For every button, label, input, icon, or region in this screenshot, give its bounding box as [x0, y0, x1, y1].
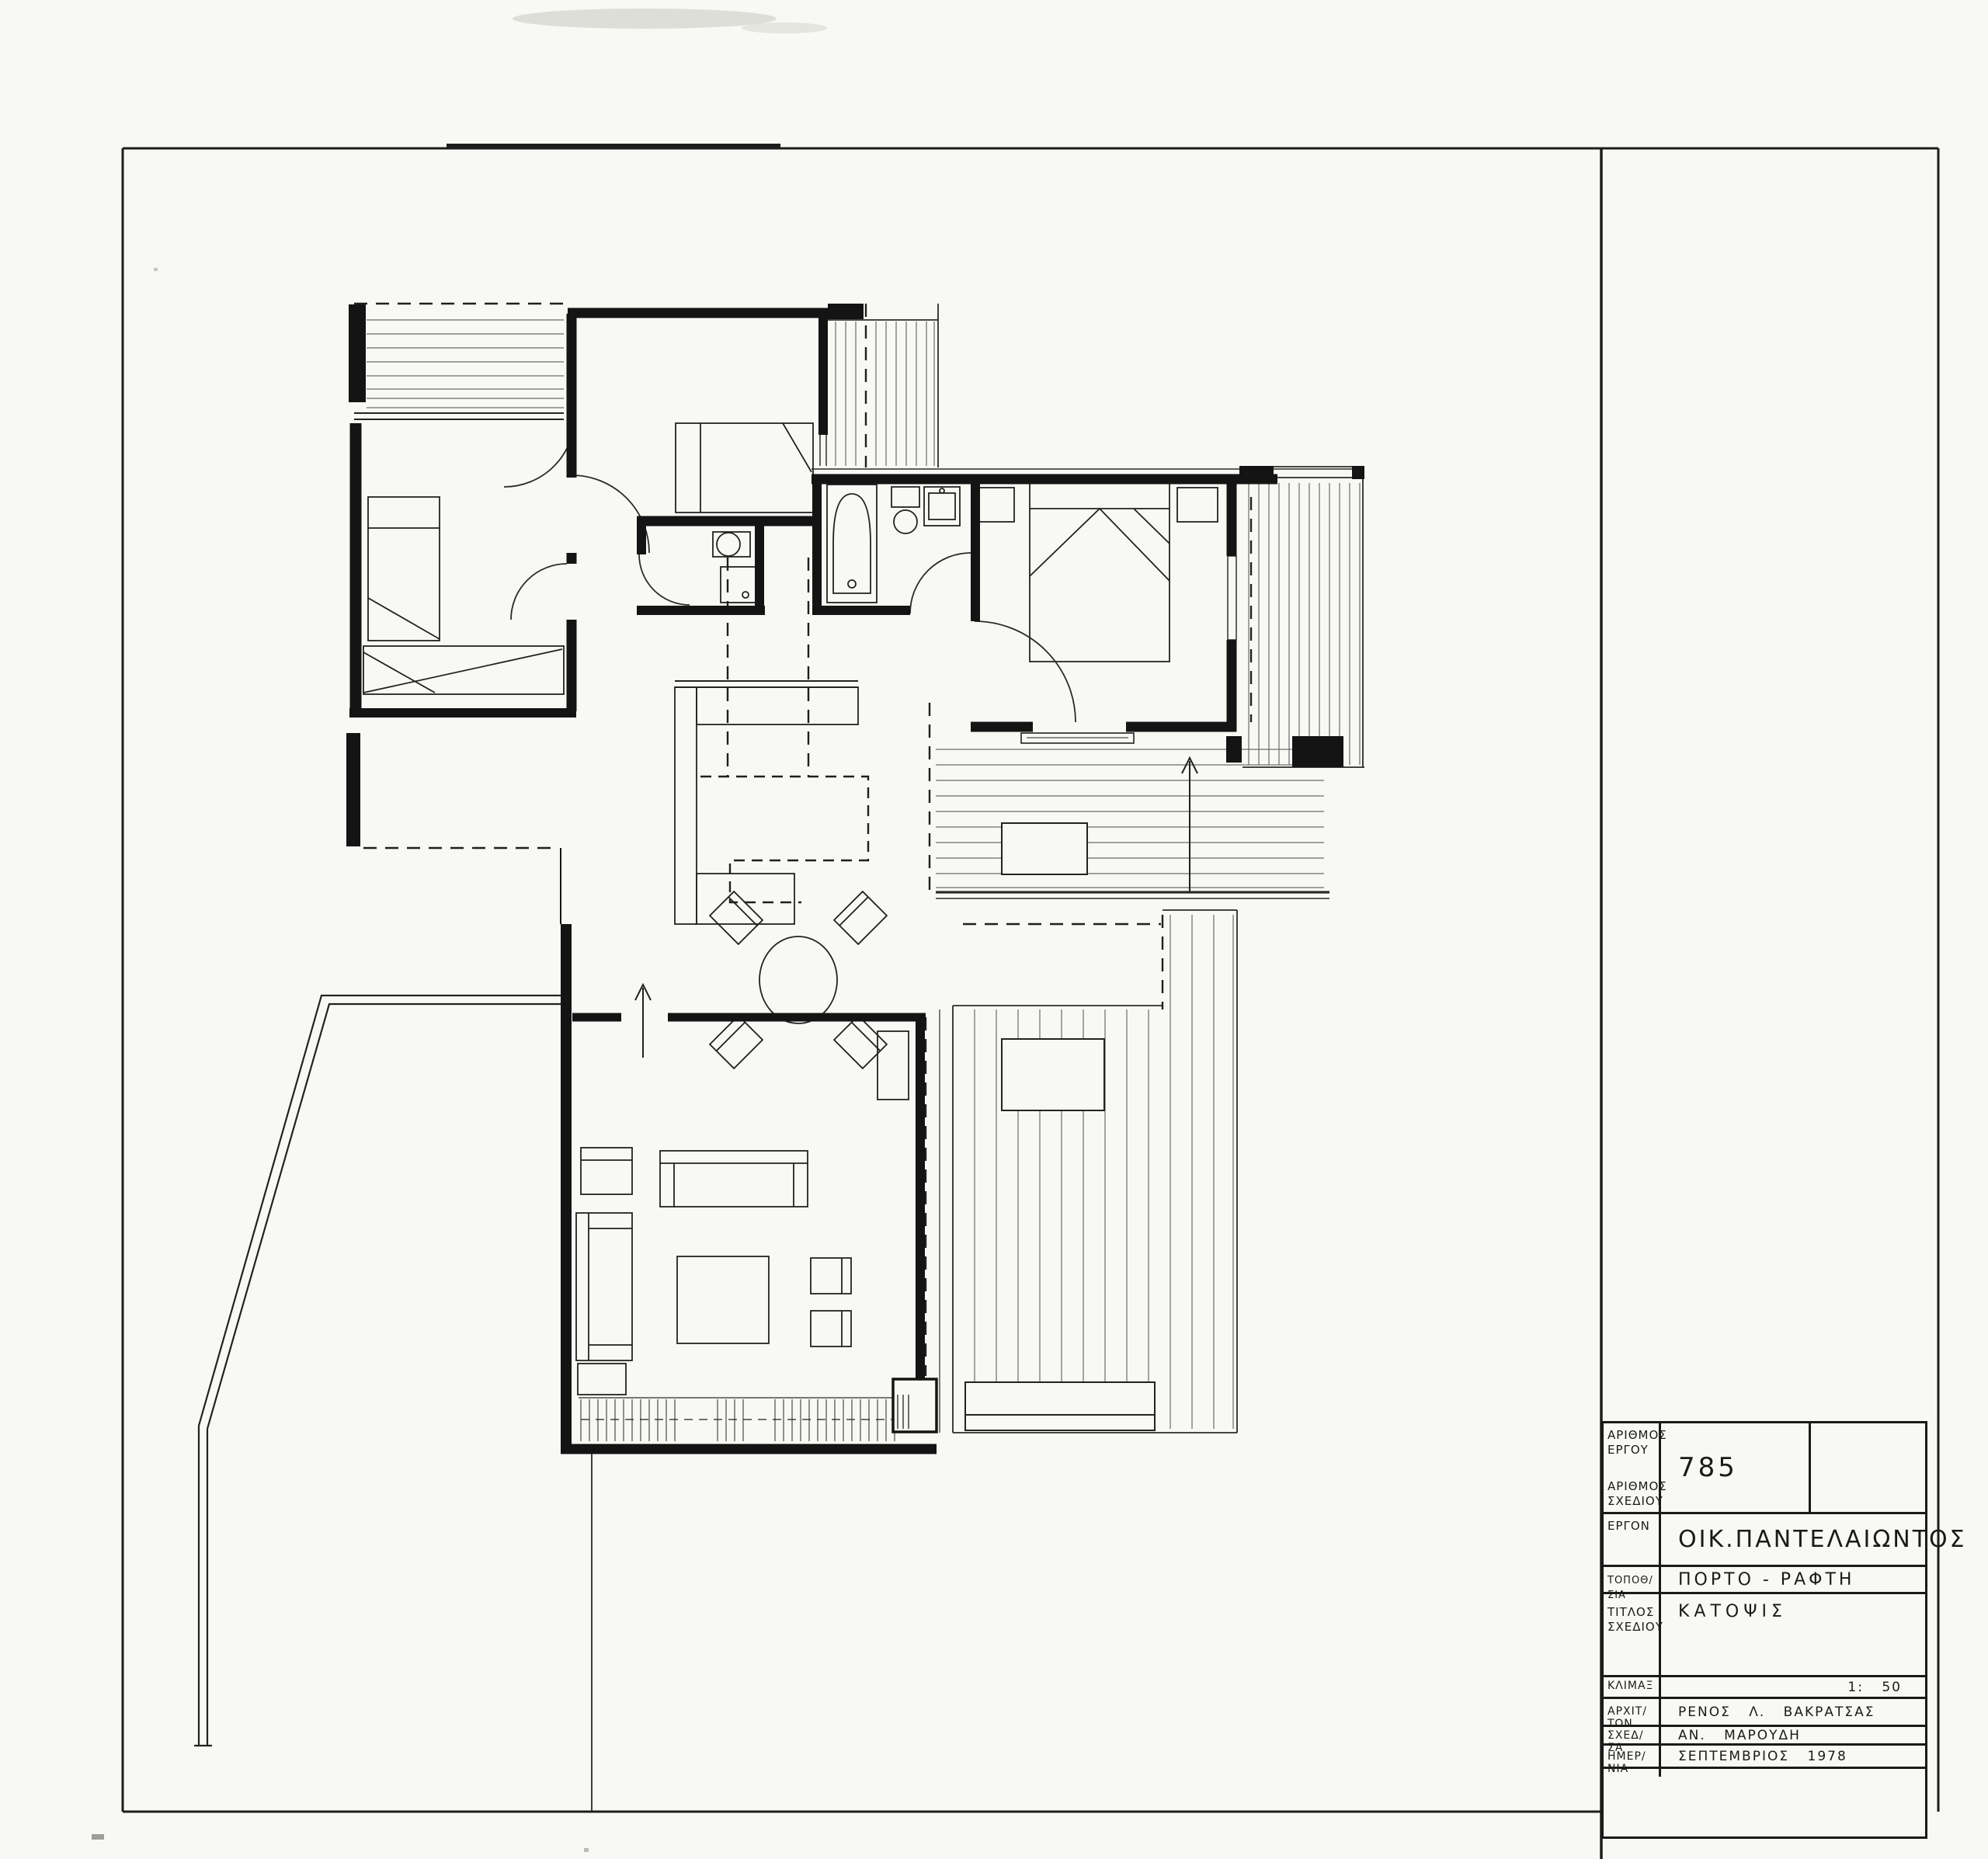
shower-tray	[721, 567, 756, 603]
title-block-row-architect: ΑΡΧΙΤ/ΤΩΝ ΡΕΝΟΣ Λ. ΒΑΚΡΑΤΣΑΣ	[1604, 1699, 1925, 1727]
bedroom-1	[354, 413, 564, 694]
toilet-1	[713, 532, 750, 557]
wall-pillar-w	[346, 733, 360, 846]
title-block-row-number: ΑΡΙΘΜΟΣ ΕΡΓΟΥ ΑΡΙΘΜΟΣ ΣΧΕΔΙΟΥ 785	[1604, 1423, 1925, 1514]
empty-label-cell	[1604, 1769, 1661, 1777]
master-bedroom	[974, 483, 1236, 743]
dining-chair	[710, 891, 763, 944]
walls	[346, 304, 1364, 1449]
field-value-architect: ΡΕΝΟΣ Λ. ΒΑΚΡΑΤΣΑΣ	[1661, 1699, 1925, 1725]
north-entry-arrows	[635, 758, 1197, 1058]
empty-value-cell	[1661, 1769, 1925, 1777]
project-number: 785	[1678, 1452, 1738, 1483]
title-block-row-title: ΤΙΤΛΟΣ ΣΧΕΔΙΟΥ ΚΑΤΟΨΙΣ	[1604, 1594, 1925, 1677]
wall-pillar-ne	[1239, 466, 1274, 479]
nightstand	[1177, 488, 1218, 522]
wc	[713, 532, 756, 603]
field-value-drawing-title: ΚΑΤΟΨΙΣ	[1661, 1594, 1925, 1675]
field-label-drawing-title: ΤΙΤΛΟΣ ΣΧΕΔΙΟΥ	[1604, 1594, 1661, 1675]
field-value-location: ΠΟΡΤΟ - ΡΑΦΤΗ	[1661, 1567, 1925, 1592]
terrace-nw-hatch	[367, 320, 564, 408]
title-block-row-date: ΗΜΕΡ/ΝΙΑ ΣΕΠΤΕΜΒΡΙΟΣ 1978	[1604, 1746, 1925, 1769]
stool	[811, 1258, 851, 1294]
door-bedroom1	[511, 564, 567, 620]
wall-corner-block	[893, 1379, 937, 1432]
dining-chair	[710, 1016, 763, 1068]
project-name: ΟΙΚ.ΠΑΝΤΕΛΑΙΩΝΤΟΣ	[1678, 1526, 1967, 1553]
deck-table-se	[1002, 1039, 1104, 1110]
scale-value: 1: 50	[1847, 1680, 1902, 1695]
field-value-date: ΣΕΠΤΕΜΒΡΙΟΣ 1978	[1661, 1746, 1925, 1767]
empty-subcell	[1809, 1423, 1925, 1512]
bed-double	[1030, 483, 1170, 662]
door-bathroom	[910, 553, 971, 613]
living-room-furniture	[576, 1031, 909, 1395]
draftsman-name: ΑΝ. ΜΑΡΟΥΔΗ	[1678, 1728, 1801, 1743]
door-wc	[639, 554, 690, 605]
title-block-row-ergon: ΕΡΓΟΝ ΟΙΚ.ΠΑΝΤΕΛΑΙΩΝΤΟΣ	[1604, 1514, 1925, 1567]
drawing-sheet: ΑΡΙΘΜΟΣ ΕΡΓΟΥ ΑΡΙΘΜΟΣ ΣΧΕΔΙΟΥ 785 ΕΡΓΟΝ …	[0, 0, 1988, 1859]
entry-deck-hatch	[836, 321, 934, 466]
field-label-architect: ΑΡΧΙΤ/ΤΩΝ	[1604, 1699, 1661, 1725]
roof-dashed-lines	[354, 304, 1251, 1419]
dining-chair	[834, 1016, 887, 1068]
field-label-draftsman: ΣΧΕΔ/ΣΑ	[1604, 1727, 1661, 1743]
bed-single-2	[676, 423, 813, 513]
master-window	[1228, 556, 1236, 640]
kitchen-counter	[675, 681, 858, 924]
wall-pillar	[1292, 736, 1343, 767]
entry-arrow-deck	[1182, 758, 1197, 893]
field-label-date: ΗΜΕΡ/ΝΙΑ	[1604, 1746, 1661, 1767]
bathtub	[827, 485, 877, 603]
door-master-bedroom	[975, 621, 1076, 722]
sofa-long	[576, 1213, 632, 1360]
drawing-title: ΚΑΤΟΨΙΣ	[1678, 1602, 1787, 1621]
door-bedroom1-terrace	[504, 416, 575, 487]
label-arithmos-ergou: ΑΡΙΘΜΟΣ ΕΡΓΟΥ	[1607, 1428, 1656, 1458]
entry-arrow-living	[635, 985, 651, 1058]
console	[878, 1031, 909, 1100]
scan-artifacts	[92, 9, 827, 1852]
toilet-2	[891, 487, 919, 507]
wall-pillar-nw	[349, 304, 366, 402]
title-block-row-empty	[1604, 1769, 1925, 1777]
bathroom	[827, 485, 960, 603]
date-value: ΣΕΠΤΕΜΒΡΙΟΣ 1978	[1678, 1749, 1847, 1764]
coffee-table	[677, 1256, 769, 1343]
bedroom-2	[676, 423, 826, 513]
dining-table	[710, 891, 887, 1068]
dining-chair	[834, 891, 887, 944]
deck-center-hatch	[936, 749, 1324, 888]
deck-ne-hatch	[1249, 483, 1360, 765]
deck-se-hatch	[975, 915, 1233, 1429]
deck-bench	[965, 1382, 1155, 1430]
field-value-scale: 1: 50	[1661, 1677, 1925, 1697]
armchair	[581, 1148, 632, 1194]
field-label-project-number: ΑΡΙΘΜΟΣ ΕΡΓΟΥ ΑΡΙΘΜΟΣ ΣΧΕΔΙΟΥ	[1604, 1423, 1661, 1512]
stool	[811, 1311, 851, 1346]
field-label-ergon: ΕΡΓΟΝ	[1604, 1514, 1661, 1565]
side-table	[578, 1364, 626, 1395]
title-block-row-draftsman: ΣΧΕΔ/ΣΑ ΑΝ. ΜΑΡΟΥΔΗ	[1604, 1727, 1925, 1746]
field-value-draftsman: ΑΝ. ΜΑΡΟΥΔΗ	[1661, 1727, 1925, 1743]
architect-name: ΡΕΝΟΣ Λ. ΒΑΚΡΑΤΣΑΣ	[1678, 1704, 1875, 1720]
field-label-location: ΤΟΠΟΘ/ΣΙΑ	[1604, 1567, 1661, 1592]
sofa	[660, 1151, 808, 1207]
door-arcs	[504, 416, 1076, 722]
title-block-row-scale: ΚΛΙΜΑΞ 1: 50	[1604, 1677, 1925, 1699]
title-block-row-location: ΤΟΠΟΘ/ΣΙΑ ΠΟΡΤΟ - ΡΑΦΤΗ	[1604, 1567, 1925, 1594]
location-name: ΠΟΡΤΟ - ΡΑΦΤΗ	[1678, 1570, 1854, 1590]
label-arithmos-sxediou: ΑΡΙΘΜΟΣ ΣΧΕΔΙΟΥ	[1607, 1479, 1656, 1509]
wall-pillar	[1226, 736, 1242, 763]
title-block: ΑΡΙΘΜΟΣ ΕΡΓΟΥ ΑΡΙΘΜΟΣ ΣΧΕΔΙΟΥ 785 ΕΡΓΟΝ …	[1601, 1421, 1927, 1839]
wall-pillar-entry	[828, 304, 864, 319]
bedroom-2-window	[820, 435, 826, 466]
field-label-scale: ΚΛΙΜΑΞ	[1604, 1677, 1661, 1697]
site-boundary-wall	[194, 996, 564, 1746]
field-value-ergon: ΟΙΚ.ΠΑΝΤΕΛΑΙΩΝΤΟΣ	[1661, 1514, 1973, 1565]
deck-table-ne	[1002, 823, 1087, 874]
